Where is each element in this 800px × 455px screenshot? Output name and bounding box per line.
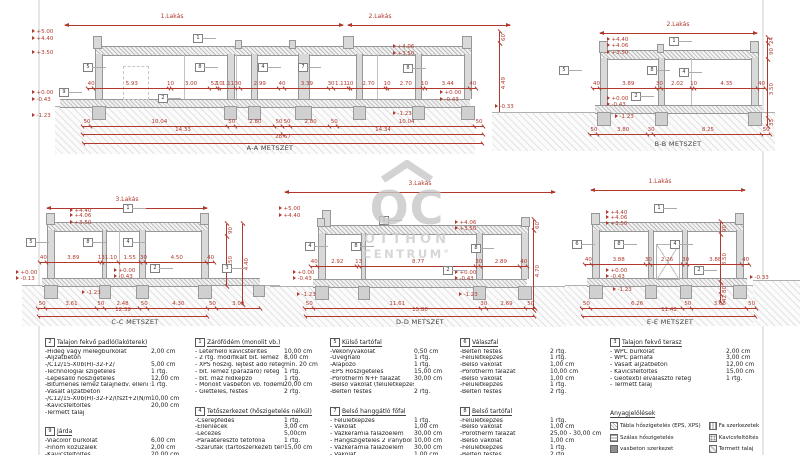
legend-block-number: 4: [195, 407, 205, 416]
unit-span-arrow: [348, 25, 510, 26]
legend-row-label: - Vakolat: [330, 452, 414, 455]
dim-value: 4.50: [146, 255, 207, 262]
dimension-total: 11.42: [582, 307, 756, 317]
vdim-value: 90: [721, 222, 729, 235]
dim-value: 3.44: [426, 81, 470, 88]
legend-block-title: Külső tartófal: [342, 339, 382, 348]
legend-row-label: - Leterhelő kavicsterítés: [195, 349, 284, 356]
legend-row: -Beltéri festés2 rtg.: [460, 349, 606, 356]
parapet: [735, 213, 744, 225]
material-item: vasbeton szerkezet: [610, 445, 701, 453]
legend-block: 8Belső tartófal -Felületképzés1 rtg. -Be…: [460, 407, 606, 455]
callout-marker: 5: [83, 63, 93, 72]
vdim-value: 42: [721, 295, 729, 302]
legend-row-label: -Belső vakolat: [460, 424, 550, 431]
legend-row-label: -Alapozó: [330, 362, 414, 369]
section-cc-drawing: 3.Lakás 403.89131.101.55304.5040 503.615…: [30, 180, 280, 335]
section-ee-drawing: 1.Lakás 403.88302.26303.8840 506.26503.6…: [570, 180, 800, 335]
unit-label: 1.Lakás: [112, 13, 232, 20]
elevation-mark: -1.23: [32, 113, 51, 119]
material-swatch-icon: [709, 422, 717, 430]
legend-row-label: - WPC párnafa: [610, 355, 726, 362]
vertical-dimension-chain: 604.70: [533, 220, 542, 310]
dim-value: 14.33: [83, 127, 283, 134]
legend-row-label: - Vasalt aljzatbeton: [610, 362, 726, 369]
legend-row: - Leterhelő kavicsterítés10,00 cm: [195, 349, 328, 356]
legend-row-value: 2 rtg.: [284, 389, 328, 396]
legend-row: - Kavicsfeltöltés15,00 cm: [610, 369, 770, 376]
parapet: [750, 41, 759, 53]
dimension-total: 28.67: [83, 134, 483, 144]
layer-legend: 2Talajon fekvő padló(lakóterek) -Hideg v…: [40, 338, 790, 453]
parapet: [46, 213, 55, 225]
footing: [136, 285, 149, 299]
party-wall: [298, 54, 310, 99]
legend-row: -Szarufák (tartószerkezeti terv szerint)…: [195, 445, 328, 452]
legend-block-title: Tetőszerkezet (hőszigetelés nélkül): [207, 408, 312, 417]
legend-row-label: -Vasalt aljzatbeton: [45, 389, 151, 396]
legend-row-label: -Páraáteresztő tetőfólia: [195, 438, 284, 445]
material-item: Szálas hőszigetelés: [610, 434, 701, 442]
callout-marker: 1: [193, 34, 203, 43]
interior-wall: [415, 54, 422, 99]
legend-block-number: 8: [460, 407, 470, 416]
legend-row-label: -Vékonyvakolat: [330, 349, 414, 356]
legend-row-label: - Glettelés, festés: [195, 389, 284, 396]
material-swatch-icon: [610, 434, 618, 442]
dimension-chain-main: 403.89302.02104.3540: [593, 78, 765, 89]
dim-value: 3.80: [598, 127, 649, 134]
dim-value: 40: [207, 255, 214, 262]
parapet: [289, 40, 296, 49]
section-title: D-D METSZET: [275, 318, 565, 326]
legend-row-label: -Beltéri festés: [460, 452, 550, 455]
material-item: Termett talaj: [709, 445, 760, 453]
legend-row: - Vázkerámia falazóelem30,00 cm: [330, 445, 458, 452]
elevation-mark: -0.33: [495, 104, 514, 110]
parapet: [235, 40, 242, 49]
legend-row-label: - 2 rtg. modifikált bit. lemez: [195, 355, 284, 362]
legend-row: -Üvegháló1 rtg.: [330, 355, 458, 362]
legend-row-value: 1 rtg.: [151, 382, 195, 389]
dimension-total: 12.39: [38, 307, 208, 317]
elevation-mark: +3.50: [393, 51, 414, 57]
legend-row-label: -Belső vakolat: [460, 362, 550, 369]
elevation-mark: -0.33: [750, 275, 769, 281]
elevation-mark: -1.23: [82, 290, 101, 296]
material-swatch-icon: [709, 434, 717, 442]
elevation-mark: -0.43: [32, 97, 51, 103]
vdim-value: 4.70: [534, 231, 542, 310]
legend-row-label: - Termett talaj: [610, 382, 726, 389]
legend-row-label: - XPS hőszig. lejtést adó réteg lejtés m…: [195, 362, 284, 369]
callout-marker: 6: [572, 240, 582, 249]
callout-marker: 2: [694, 266, 704, 275]
legend-row-label: -Finom kőzúzalék: [45, 445, 151, 452]
legend-row: -Termett talaj: [45, 410, 195, 417]
legend-column: 6Válaszfal -Beltéri festés2 rtg. -Felüle…: [460, 338, 606, 455]
footing: [645, 285, 657, 299]
legend-block: 4Tetőszerkezet (hőszigetelés nélkül) -Cs…: [195, 407, 328, 451]
legend-row: -Kavicsfeltöltés20,00 cm: [45, 403, 195, 410]
parapet: [93, 36, 102, 49]
watermark-monogram: OC: [352, 186, 462, 230]
legend-row-label: - Hangszigetelés 2 irányból (10 cm): [330, 438, 414, 445]
parapet: [657, 44, 664, 53]
dim-value: 3.88: [688, 257, 742, 264]
parapet: [591, 213, 600, 225]
legend-row-label: -Lécezés: [195, 431, 284, 438]
elevation-mark: -0.43: [114, 274, 133, 280]
legend-row-label: -Felületképzés: [460, 418, 550, 425]
legend-block: 6Válaszfal -Beltéri festés2 rtg. -Felüle…: [460, 338, 606, 396]
legend-row: -Beltéri festés2 rtg.: [460, 452, 606, 455]
elevation-mark: +4.40: [32, 36, 53, 42]
legend-block-number: 7: [330, 407, 340, 416]
callout-marker: 8: [614, 240, 624, 249]
unit-span-arrow: [591, 190, 745, 191]
legend-column: 2Talajon fekvő padló(lakóterek) -Hideg v…: [45, 338, 195, 455]
callout-marker: 1: [123, 204, 133, 213]
legend-row: -Porotherm N+F falazat30,00 cm: [330, 376, 458, 383]
vertical-dimension-total: 4.40: [242, 224, 251, 304]
callout-marker: 4: [679, 68, 689, 77]
elevation-mark: -0.43: [607, 102, 626, 108]
legend-row-label: -Aljzatbeton: [45, 355, 151, 362]
dim-value: 2.70: [388, 81, 423, 88]
material-label: Szálas hőszigetelés: [620, 435, 674, 441]
legend-row: - XPS hőszig. lejtést adó réteg lejtés m…: [195, 362, 328, 369]
callout-marker: 5: [559, 66, 569, 75]
materials-legend: Anyagjelölések Tábla hőszigetelés (EPS, …: [610, 400, 770, 455]
legend-row-value: 30,00 cm: [414, 376, 458, 383]
legend-row: - Termett talaj: [610, 382, 770, 389]
legend-row-label: - Monolit vasbeton vb. födémlemez: [195, 382, 284, 389]
legend-row-value: 1,00 cm: [414, 452, 458, 455]
legend-row-label: -Felületképzés: [460, 445, 550, 452]
material-swatch-icon: [709, 445, 717, 453]
footing: [589, 285, 603, 299]
callout-marker: 2: [631, 92, 641, 101]
elevation-mark: -0.43: [293, 276, 312, 282]
legend-block-title: Talajon fekvő padló(lakóterek): [57, 339, 147, 348]
dimension-total: 15.80: [305, 307, 535, 317]
legend-row: -Cserépfedés1 rtg.: [195, 418, 328, 425]
elevation-mark: -1.23: [459, 292, 478, 298]
legend-row: -Bitumenes lemez talajnedv. elleni szig.…: [45, 382, 195, 389]
callout-marker: 1: [669, 37, 679, 46]
callout-marker: 4: [123, 238, 133, 247]
legend-row: -Beltéri festés2 rtg.: [330, 389, 458, 396]
material-swatch-icon: [610, 445, 618, 453]
vdim-value: 90: [227, 224, 235, 237]
legend-row: -Felületképzés1 rtg.: [460, 382, 606, 389]
legend-column: 3Talajon fekvő terasz - WPC burkolat2,00…: [610, 338, 770, 455]
legend-row-label: - Vázkerámia falazóelem: [330, 445, 414, 452]
dim-value: 2.26: [651, 257, 683, 264]
legend-row-value: [726, 382, 770, 389]
drawing-sheet: 1.Lakás 2.Lakás 405.93103.0052101.11302.…: [0, 0, 800, 455]
parapet: [200, 213, 209, 225]
legend-block: 9Járda -Viacolor burkolat6,00 cm -Finom …: [45, 427, 195, 455]
legend-row: -Ellenlécek3,00 cm: [195, 424, 328, 431]
dim-value: 40: [758, 81, 765, 88]
parapet: [343, 36, 354, 49]
legend-row: - Glettelés, festés2 rtg.: [195, 389, 328, 396]
legend-row: -Lépésálló hőszigetelés12,00 cm: [45, 376, 195, 383]
legend-row-label: -Hideg vagy melegburkolat: [45, 349, 151, 356]
legend-row-value: 2 rtg.: [550, 389, 606, 396]
elevation-mark: -0.13: [16, 276, 35, 282]
materials-title: Anyagjelölések: [610, 410, 655, 418]
dim-value: 3.89: [47, 255, 100, 262]
legend-block-title: Belső hanggátló főfal: [342, 408, 406, 417]
legend-row-value: 2,00 cm: [151, 349, 195, 356]
vdim-value: 35: [768, 119, 776, 126]
elevation-mark: +4.06: [607, 43, 628, 49]
callout-marker: 1: [654, 204, 664, 213]
legend-block-number: 6: [460, 338, 470, 347]
legend-row-value: 20,00 cm: [151, 403, 195, 410]
dimension-chain-main: 403.89131.101.55304.5040: [40, 252, 214, 263]
legend-row-label: -Beltéri festés: [460, 349, 550, 356]
legend-block-title: Járda: [57, 428, 72, 437]
dim-value: 2.70: [351, 81, 386, 88]
callout-marker: 9: [59, 88, 69, 97]
legend-row: -Belső vakolat1,00 cm: [460, 362, 606, 369]
legend-row-label: - Vázkerámia falazóelem: [330, 431, 414, 438]
callout-marker: 7: [298, 63, 308, 72]
legend-row-label: -Cserépfedés: [195, 418, 284, 425]
vdim-value: 90: [768, 44, 776, 60]
dim-value: 2.89: [481, 259, 520, 266]
legend-row-label: -Technológiai szigetelés: [45, 369, 151, 376]
callout-marker: 5: [26, 238, 36, 247]
material-label: vasbeton szerkezet: [620, 446, 673, 452]
parapet: [521, 217, 530, 227]
watermark-line2: CENTRUM®: [352, 247, 462, 261]
section-title: B-B METSZET: [558, 140, 798, 148]
legend-row-value: 15,00 cm: [284, 445, 328, 452]
legend-row-value: 2 rtg.: [414, 389, 458, 396]
unit-span-arrow: [65, 25, 343, 26]
legend-row-label: -Belső vakolat: [460, 376, 550, 383]
dim-value: 3.88: [592, 257, 646, 264]
material-label: Kavicsfeltöltés: [719, 435, 759, 441]
callout-marker: 3: [222, 264, 232, 273]
exterior-wall: [464, 54, 472, 99]
legend-row: -Lécezés5,00cm: [195, 431, 328, 438]
legend-block: 3Talajon fekvő terasz - WPC burkolat2,00…: [610, 338, 770, 389]
callout-marker: 4: [258, 63, 268, 72]
elevation-mark: +0.00: [440, 90, 461, 96]
unit-label: 3.Lakás: [67, 196, 187, 203]
section-title: E-E METSZET: [570, 318, 770, 326]
section-aa-drawing: 1.Lakás 2.Lakás 405.93103.0052101.11302.…: [55, 8, 510, 160]
legend-row: -Belső vakolat1,00 cm: [460, 438, 606, 445]
footing: [733, 285, 747, 299]
legend-block-title: Zárófödém (monolit vb.): [207, 339, 280, 348]
footing: [198, 285, 212, 299]
exterior-wall: [95, 54, 103, 99]
legend-row-label: -Kavicsfeltöltés: [45, 403, 151, 410]
watermark-logo: OC OTTHON CENTRUM®: [352, 160, 462, 261]
material-item: Kavicsfeltöltés: [709, 434, 760, 442]
house-roof-icon: [379, 160, 435, 182]
legend-row: -/C12/15-X0b(H)-32-F2/5,00 cm: [45, 362, 195, 369]
legend-row-label: -Belső vakolat: [460, 438, 550, 445]
interior-wall: [356, 54, 363, 99]
elevation-mark: +3.50: [32, 50, 53, 56]
interior-wall: [251, 54, 258, 99]
legend-row: -Belső vakolat1,00 cm: [460, 376, 606, 383]
section-title: A-A METSZET: [55, 144, 485, 152]
partition-wall: [377, 54, 378, 99]
vdim-value: 4.40: [243, 224, 251, 304]
callout-marker: 8: [195, 63, 205, 72]
callout-marker: 8: [83, 238, 93, 247]
dim-value: 3.39: [285, 81, 328, 88]
legend-row: -Beltéri festés2 rtg.: [460, 389, 606, 396]
legend-row-value: 2 rtg.: [550, 452, 606, 455]
legend-row: - Monolit vasbeton vb. födémlemez20,00 c…: [195, 382, 328, 389]
legend-row: -Kavicsfeltöltés20,00 cm: [45, 452, 195, 455]
legend-block: 2Talajon fekvő padló(lakóterek) -Hideg v…: [45, 338, 195, 416]
legend-row-value: 20,00 cm: [151, 452, 195, 455]
callout-marker: 2: [158, 94, 168, 103]
legend-row: -Porotherm falazat25,00 - 30,00 cm: [460, 431, 606, 438]
partition-wall: [184, 54, 185, 99]
legend-row-label: -Szarufák (tartószerkezeti terv szerint): [195, 445, 284, 452]
legend-block-title: Talajon fekvő terasz: [622, 339, 682, 348]
legend-row-label: -Porotherm falazat: [460, 369, 550, 376]
dim-value: 40: [742, 257, 749, 264]
legend-block-number: 2: [45, 338, 55, 347]
legend-row: - Felületképzés1 rtg.: [330, 418, 458, 425]
dim-value: 3.00: [172, 81, 211, 88]
legend-row-value: 1 rtg.: [726, 376, 770, 383]
legend-block-number: 1: [195, 338, 205, 347]
footing: [44, 285, 58, 299]
material-item: Tábla hőszigetelés (EPS, XPS): [610, 422, 701, 430]
legend-row-label: - Kavicsfeltöltés: [610, 369, 726, 376]
elevation-mark: -1.23: [615, 114, 634, 120]
callout-marker: 8: [403, 64, 413, 73]
legend-row: -Hideg vagy melegburkolat2,00 cm: [45, 349, 195, 356]
legend-row-label: -Viacolor burkolat: [45, 438, 151, 445]
elevation-mark: +4.06: [393, 44, 414, 50]
legend-row-label: - bit. lemez (párazáró) réteg: [195, 369, 284, 376]
material-label: Tábla hőszigetelés (EPS, XPS): [620, 423, 701, 429]
dimension-chain-main: 405.93103.0052101.11302.99403.39301.1110…: [88, 78, 476, 89]
legend-row-label: -EPS Hőszigetelés: [330, 369, 414, 376]
vdim-value: 3.50: [721, 235, 729, 283]
legend-row: -Felületképzés1 rtg.: [460, 355, 606, 362]
legend-row-label: -Belső vakolat (felületképzéssel): [330, 382, 414, 389]
dim-value: 2.99: [241, 81, 279, 88]
parapet: [317, 218, 325, 227]
legend-column: 5Külső tartófal -Vékonyvakolat0,50 cm -Ü…: [330, 338, 458, 455]
legend-row-value: [151, 410, 195, 417]
vertical-dimension-chain: 24903.5035: [767, 38, 776, 126]
legend-row-label: - Vakolat: [330, 424, 414, 431]
section-bb-drawing: 2.Lakás 403.89302.02104.3540 503.80308.2…: [495, 20, 800, 160]
legend-row: -Belső vakolat (felületképzéssel): [330, 382, 458, 389]
elevation-mark: +4.40: [279, 213, 300, 219]
elevation-mark: +3.50: [606, 221, 627, 227]
floor-slab: [60, 99, 470, 108]
dimension-chain-bottom: 503.80308.2550: [590, 124, 770, 135]
legend-row: -Felületképzés1 rtg.: [460, 418, 606, 425]
material-label: Termett talaj: [719, 446, 754, 452]
legend-row: - Geotextil elválasztó réteg1 rtg.: [610, 376, 770, 383]
legend-block-number: 5: [330, 338, 340, 347]
dim-value: 3.89: [600, 81, 656, 88]
footing: [680, 285, 692, 299]
material-swatch-icon: [610, 422, 618, 430]
vertical-dimension-chain: 903.508042: [720, 222, 729, 302]
elevation-mark: +0.00: [32, 90, 53, 96]
elevation-mark: -1.23: [613, 287, 632, 293]
legend-row: -Porotherm falazat10,00 cm: [460, 369, 606, 376]
vertical-dimension-chain: 903.50: [226, 224, 235, 286]
elevation-mark: -0.43: [440, 97, 459, 103]
elevation-mark: +5.00: [32, 29, 53, 35]
callout-marker: 2: [150, 264, 160, 273]
legend-row: - Vakolat1,00 cm: [330, 452, 458, 455]
vdim-value: 3.50: [768, 60, 776, 119]
elevation-mark: -1.23: [297, 292, 316, 298]
legend-row-label: -Felületképzés: [460, 355, 550, 362]
legend-block-title: Válaszfal: [472, 339, 498, 348]
legend-row-label: -Porotherm falazat: [460, 431, 550, 438]
legend-row-label: - WPC burkolat: [610, 349, 726, 356]
legend-row-label: - Felületképzés: [330, 418, 414, 425]
callout-marker: 8: [471, 244, 481, 253]
legend-block: 7Belső hanggátló főfal - Felületképzés1 …: [330, 407, 458, 455]
dim-value: 14.34: [283, 127, 483, 134]
legend-row-label: -Termett talaj: [45, 410, 151, 417]
unit-label: 1.Lakás: [600, 178, 720, 185]
callout-marker: 4: [670, 240, 680, 249]
legend-block-title: Belső tartófal: [472, 408, 512, 417]
vdim-value: 80: [721, 283, 729, 295]
elevation-mark: +4.06: [70, 213, 91, 219]
dim-value: 40: [520, 259, 527, 266]
legend-row-label: -/C12/15-X0b(H)-32-F2/: [45, 362, 151, 369]
partition-wall: [236, 54, 237, 99]
elevation-mark: +5.00: [279, 206, 300, 212]
legend-row: -Vékonyvakolat0,50 cm: [330, 349, 458, 356]
legend-row-label: -Beltéri festés: [330, 389, 414, 396]
dim-value: 40: [470, 81, 476, 88]
legend-row-label: - Geotextil elválasztó réteg: [610, 376, 726, 383]
legend-row: - bit. lemez (párazáró) réteg1 rtg.: [195, 369, 328, 376]
vdim-value: 60: [534, 220, 542, 231]
legend-row-label: -Kavicsfeltöltés: [45, 452, 151, 455]
elevation-mark: -1.23: [393, 111, 412, 117]
dim-value: 5.93: [94, 81, 169, 88]
legend-column: 1Zárófödém (monolit vb.) - Leterhelő kav…: [195, 338, 328, 455]
callout-marker: 4: [305, 242, 315, 251]
legend-block-number: 9: [45, 427, 55, 436]
elevation-mark: +3.50: [70, 220, 91, 226]
elevation-mark: -0.43: [606, 274, 625, 280]
callout-marker: 2: [443, 266, 453, 275]
legend-row-label: -Lépésálló hőszigetelés: [45, 376, 151, 383]
elevation-mark: +3.50: [607, 50, 628, 56]
watermark-line1: OTTHON: [352, 232, 462, 247]
